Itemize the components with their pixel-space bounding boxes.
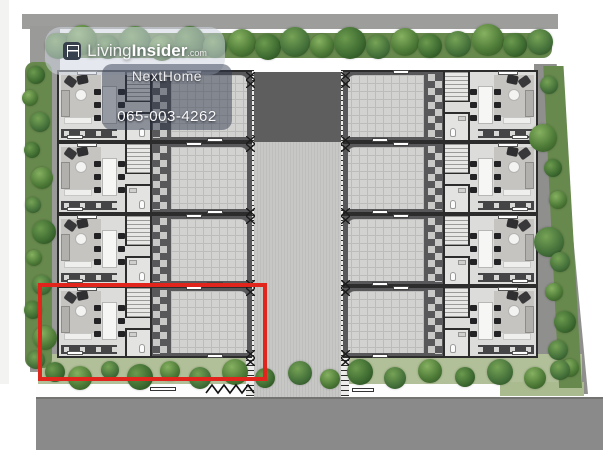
toilet: [450, 128, 456, 137]
parking-pad-grid: [171, 147, 247, 209]
staircase: [445, 144, 470, 174]
tree: [549, 191, 567, 209]
tree: [366, 35, 390, 59]
gate-symbol: [341, 208, 350, 224]
dining-chair: [94, 187, 101, 193]
tree: [487, 359, 513, 385]
brand-part2: Insider: [132, 41, 188, 60]
unit-carport: [343, 70, 443, 142]
staircase: [125, 216, 150, 246]
tree: [527, 29, 553, 55]
tree: [255, 34, 281, 60]
bathroom-sink: [129, 188, 137, 193]
tree: [548, 340, 568, 360]
tree: [540, 76, 558, 94]
sofa: [525, 90, 534, 117]
window-mark: [498, 215, 518, 219]
tree: [288, 361, 312, 385]
tree: [280, 27, 310, 57]
dining-chair: [118, 174, 125, 180]
site-plan-image: LivingInsider.com NextHome 065-003-4262: [0, 0, 603, 450]
unit-left-2: [57, 142, 252, 214]
gate-symbol: [246, 136, 255, 152]
dining-chair: [94, 233, 101, 239]
stepping-stone-path: [428, 290, 442, 354]
unit-carport: [152, 214, 252, 286]
dining-chair: [118, 161, 125, 167]
sofa: [525, 306, 534, 333]
tree: [22, 90, 38, 106]
plan-dash-mark: [352, 388, 374, 392]
dining-table: [102, 158, 117, 196]
dining-chair: [470, 102, 477, 108]
gate-symbol: [246, 72, 255, 88]
coffee-table: [75, 233, 87, 245]
carport-gate-mark: [393, 142, 409, 146]
door-mark: [67, 207, 83, 211]
dining-table: [478, 158, 493, 196]
tree: [545, 283, 563, 301]
highlight-rectangle: [38, 283, 267, 381]
dining-table: [478, 230, 493, 268]
livinginsider-logo-icon: [63, 42, 81, 60]
tree: [384, 367, 406, 389]
tree: [550, 252, 570, 272]
unit-floor-plan: [57, 214, 152, 286]
dining-chair: [470, 259, 477, 265]
unit-floor-plan: [443, 286, 538, 358]
unit-floor-plan: [443, 70, 538, 142]
tree: [320, 369, 340, 389]
stepping-stone-path: [153, 218, 167, 282]
unit-right-2: [343, 142, 538, 214]
bathroom-sink: [458, 116, 466, 121]
dining-chair: [470, 318, 477, 324]
staircase: [445, 216, 470, 246]
dining-chair: [494, 161, 501, 167]
coffee-table: [508, 161, 520, 173]
tree: [32, 220, 56, 244]
dining-chair: [494, 174, 501, 180]
door-mark: [67, 135, 83, 139]
toilet: [139, 200, 145, 209]
dining-chair: [494, 259, 501, 265]
brand-part1: Living: [87, 41, 131, 60]
dining-chair: [494, 102, 501, 108]
console-table: [64, 117, 92, 124]
toilet: [450, 344, 456, 353]
dining-chair: [470, 233, 477, 239]
unit-floor-plan: [443, 142, 538, 214]
staircase: [445, 288, 470, 318]
tree: [228, 29, 256, 57]
carport-gate-mark: [393, 214, 409, 218]
fence-zigzag-symbol: [205, 383, 257, 395]
agent-phone: 065-003-4262: [102, 108, 232, 125]
stepping-stone-path: [153, 146, 167, 210]
dining-table: [478, 86, 493, 124]
dining-chair: [494, 305, 501, 311]
tree: [347, 359, 373, 385]
window-mark: [77, 215, 97, 219]
console-table: [64, 189, 92, 196]
console-table: [503, 189, 531, 196]
bathroom-sink: [458, 332, 466, 337]
stepping-stone-path: [428, 74, 442, 138]
dining-chair: [94, 89, 101, 95]
dining-chair: [470, 305, 477, 311]
listing-info-overlay: NextHome 065-003-4262: [102, 64, 232, 130]
tree: [418, 34, 442, 58]
tree: [25, 197, 41, 213]
bathroom-sink: [458, 188, 466, 193]
dining-chair: [470, 246, 477, 252]
tree: [334, 27, 366, 59]
unit-carport: [343, 214, 443, 286]
unit-left-3: [57, 214, 252, 286]
dining-chair: [118, 246, 125, 252]
parking-pad-grid: [348, 219, 424, 281]
coffee-table: [75, 89, 87, 101]
dining-chair: [94, 102, 101, 108]
dining-table: [102, 230, 117, 268]
dining-chair: [94, 259, 101, 265]
road: [36, 397, 603, 450]
toilet: [450, 200, 456, 209]
tree: [445, 31, 471, 57]
door-mark: [512, 135, 528, 139]
dining-chair: [470, 331, 477, 337]
dining-chair: [494, 318, 501, 324]
tree: [310, 34, 334, 58]
coffee-table: [508, 233, 520, 245]
tree: [550, 360, 570, 380]
coffee-table: [75, 161, 87, 173]
page-left-margin: [0, 0, 9, 450]
gate-symbol: [341, 72, 350, 88]
parking-pad-grid: [348, 147, 424, 209]
stepping-stone-path: [428, 218, 442, 282]
bathroom-sink: [458, 260, 466, 265]
sofa: [525, 234, 534, 261]
tree: [554, 311, 576, 333]
carport-gate-mark: [186, 214, 202, 218]
door-mark: [512, 351, 528, 355]
console-table: [503, 261, 531, 268]
dining-chair: [94, 161, 101, 167]
tree: [529, 124, 557, 152]
tree: [524, 367, 546, 389]
tree: [31, 167, 53, 189]
dining-chair: [494, 233, 501, 239]
dining-chair: [470, 161, 477, 167]
unit-right-3: [343, 214, 538, 286]
dining-table: [478, 302, 493, 340]
toilet: [139, 272, 145, 281]
door-mark: [512, 207, 528, 211]
tree: [26, 250, 42, 266]
courtyard-dark-pavement: [254, 72, 341, 142]
tree: [30, 112, 50, 132]
carport-gate-mark: [393, 70, 409, 74]
console-table: [64, 261, 92, 268]
dining-chair: [94, 174, 101, 180]
unit-right-1: [343, 70, 538, 142]
brand-suffix: .com: [187, 48, 207, 58]
parking-pad-grid: [348, 291, 424, 353]
livinginsider-logo-text: LivingInsider.com: [87, 41, 207, 61]
window-mark: [498, 287, 518, 291]
staircase: [445, 72, 470, 102]
unit-carport: [343, 142, 443, 214]
unit-floor-plan: [57, 142, 152, 214]
dining-chair: [494, 89, 501, 95]
dining-chair: [470, 174, 477, 180]
window-mark: [77, 143, 97, 147]
dining-chair: [494, 331, 501, 337]
tree: [418, 359, 442, 383]
parking-pad-grid: [348, 75, 424, 137]
window-mark: [498, 71, 518, 75]
tree: [391, 28, 419, 56]
dining-chair: [470, 187, 477, 193]
console-table: [503, 117, 531, 124]
sofa: [525, 162, 534, 189]
tree: [544, 159, 562, 177]
central-driveway: [254, 142, 341, 397]
sofa: [61, 234, 70, 261]
door-mark: [512, 279, 528, 283]
dining-chair: [94, 246, 101, 252]
gate-symbol: [246, 208, 255, 224]
carport-gate-mark: [393, 286, 409, 290]
dining-chair: [470, 89, 477, 95]
dining-chair: [470, 115, 477, 121]
dining-chair: [494, 115, 501, 121]
dining-chair: [94, 115, 101, 121]
gate-symbol: [341, 136, 350, 152]
coffee-table: [508, 89, 520, 101]
dining-chair: [118, 187, 125, 193]
bathroom-sink: [129, 260, 137, 265]
road-corner: [0, 384, 36, 450]
console-table: [503, 333, 531, 340]
toilet: [450, 272, 456, 281]
sofa: [61, 90, 70, 117]
parking-pad-grid: [171, 219, 247, 281]
gate-symbol: [341, 280, 350, 296]
window-mark: [498, 143, 518, 147]
carport-gate-mark: [372, 354, 388, 358]
unit-carport: [343, 286, 443, 358]
tree: [455, 367, 475, 387]
stepping-stone-path: [428, 146, 442, 210]
dining-chair: [494, 187, 501, 193]
unit-right-4: [343, 286, 538, 358]
coffee-table: [508, 305, 520, 317]
unit-carport: [152, 142, 252, 214]
dining-chair: [494, 246, 501, 252]
carport-gate-mark: [186, 142, 202, 146]
staircase: [125, 144, 150, 174]
tree: [27, 66, 45, 84]
dining-chair: [118, 259, 125, 265]
tree: [472, 24, 504, 56]
agent-name: NextHome: [102, 68, 232, 84]
dining-chair: [118, 233, 125, 239]
unit-floor-plan: [443, 214, 538, 286]
tree: [24, 142, 40, 158]
tree: [503, 33, 527, 57]
plan-dash-mark: [150, 387, 176, 391]
sofa: [61, 162, 70, 189]
